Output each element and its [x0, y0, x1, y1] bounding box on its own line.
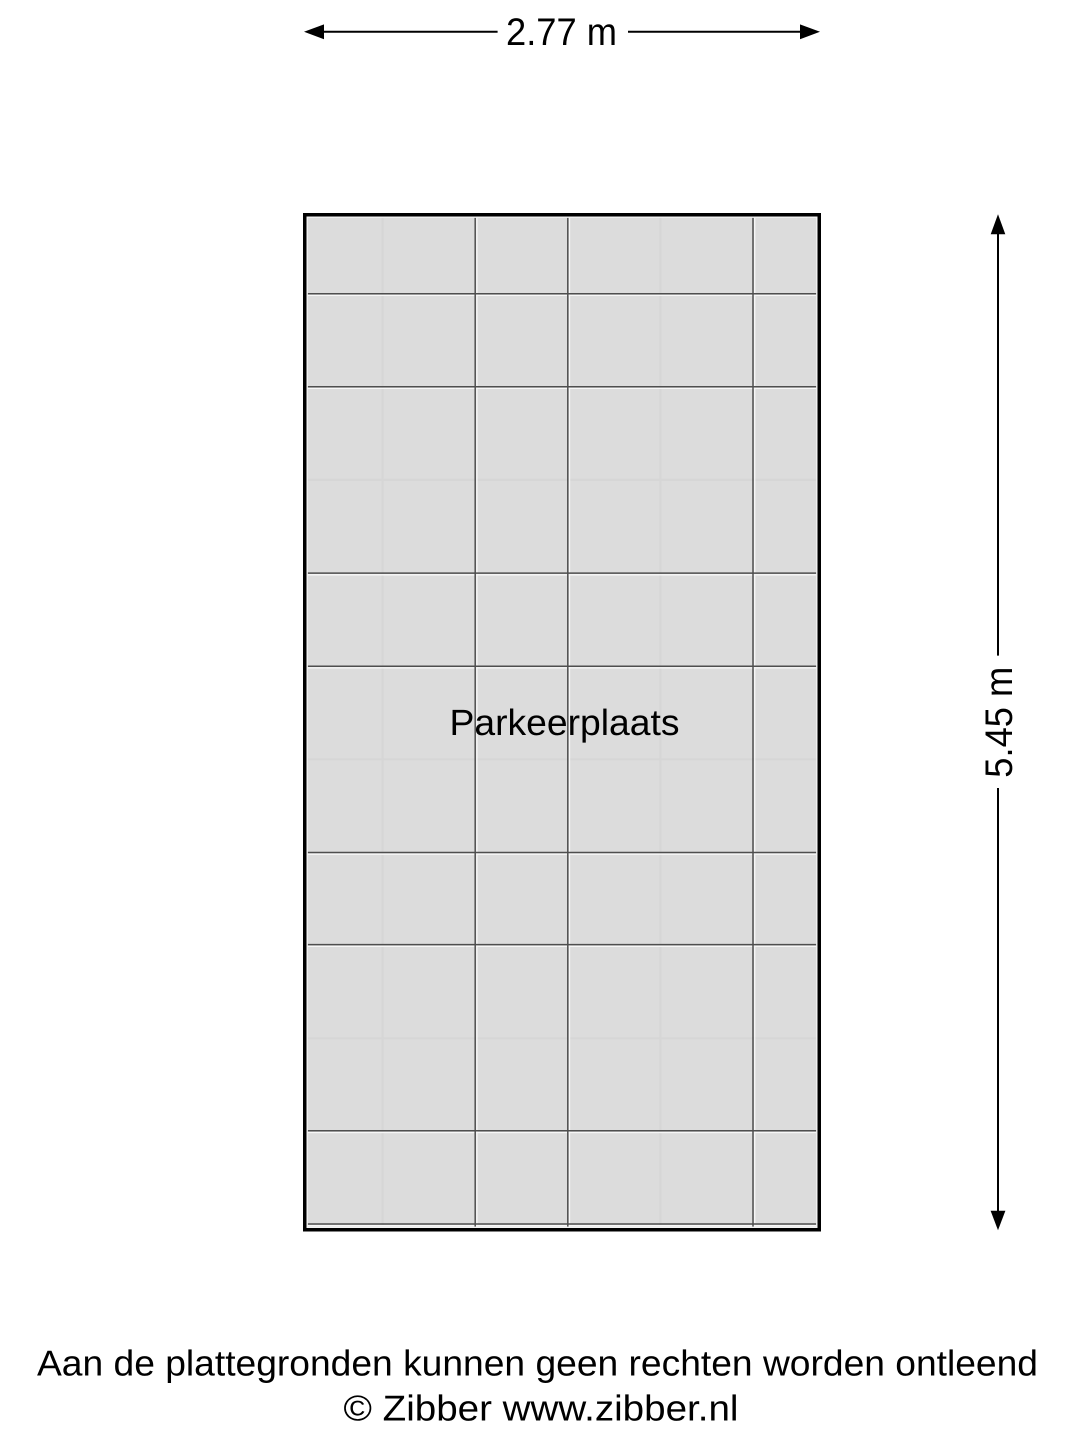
svg-text:5.45 m: 5.45 m [978, 667, 1021, 778]
svg-text:2.77 m: 2.77 m [506, 11, 617, 54]
svg-text:© Zibber www.zibber.nl: © Zibber www.zibber.nl [344, 1388, 739, 1429]
svg-text:Aan de plattegronden kunnen ge: Aan de plattegronden kunnen geen rechten… [37, 1343, 1038, 1384]
svg-text:Parkeerplaats: Parkeerplaats [450, 702, 680, 743]
